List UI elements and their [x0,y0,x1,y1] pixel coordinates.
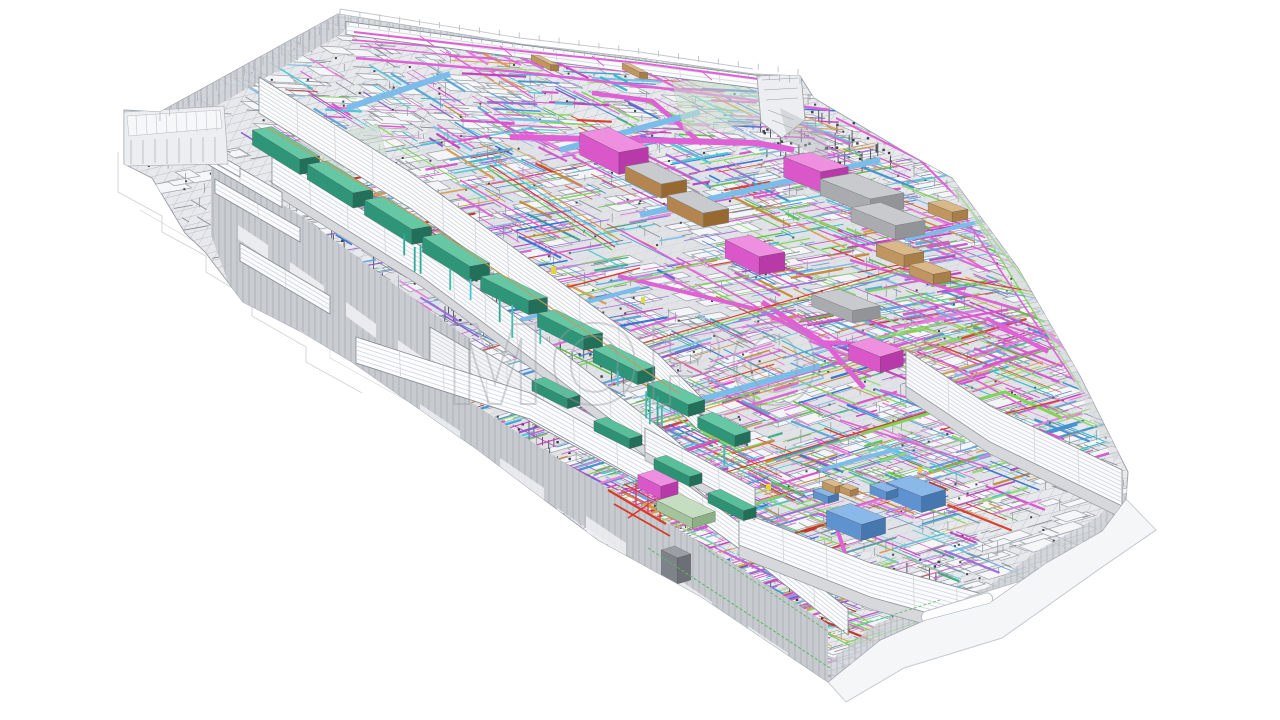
svg-text:MOPO: MOPO [447,299,825,429]
